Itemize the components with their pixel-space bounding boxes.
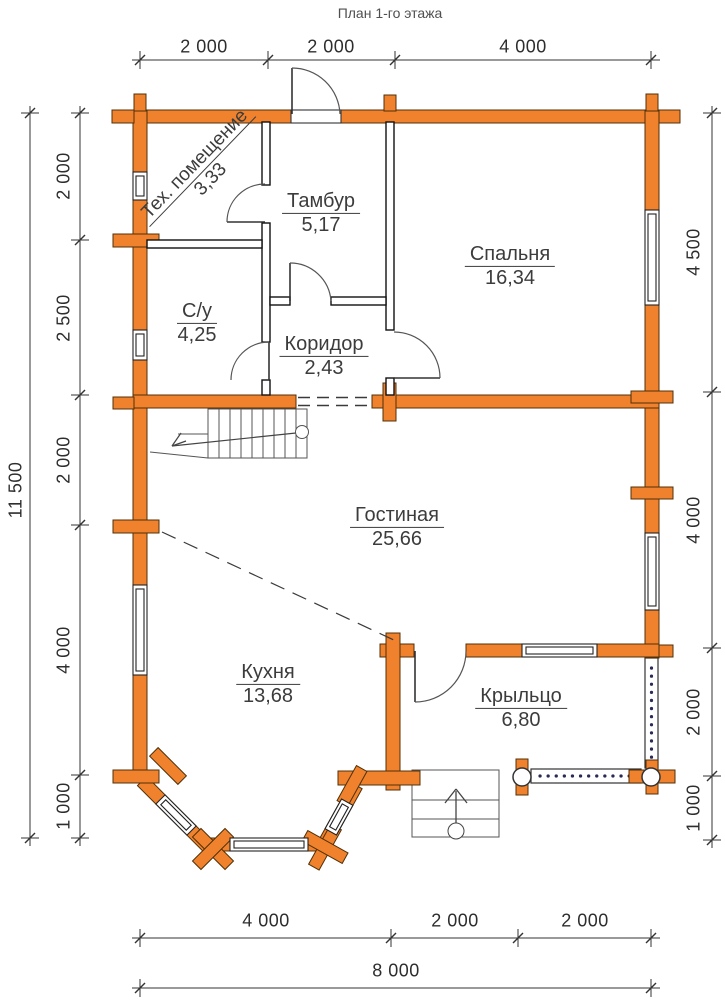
porch-steps xyxy=(412,770,499,839)
dim-bottom-total: 8 000 xyxy=(372,961,420,982)
room-name: Кухня xyxy=(236,661,300,685)
dim-top-2: 2 000 xyxy=(307,37,355,58)
dim-left-3: 2 000 xyxy=(54,436,75,484)
dim-right-2: 4 000 xyxy=(684,496,705,544)
floor-plan-page: План 1-го этажа Тех. помещение 3,33 Тамб… xyxy=(0,0,725,1000)
dim-left-4: 4 000 xyxy=(54,626,75,674)
dim-top-3: 4 000 xyxy=(499,37,547,58)
floor-plan-drawing xyxy=(0,0,725,1000)
room-name: Коридор xyxy=(280,333,369,357)
room-area: 5,17 xyxy=(302,214,341,237)
dim-bottom-3: 2 000 xyxy=(561,911,609,932)
room-area: 25,66 xyxy=(372,528,422,551)
dim-left-2: 2 500 xyxy=(54,294,75,342)
exterior-walls xyxy=(112,94,680,870)
room-area: 6,80 xyxy=(502,709,541,732)
room-name: С/у xyxy=(177,300,217,324)
room-label-bedroom: Спальня 16,34 xyxy=(465,243,555,289)
dim-right-4: 1 000 xyxy=(684,784,705,832)
room-label-porch: Крыльцо 6,80 xyxy=(475,685,567,731)
room-label-kitchen: Кухня 13,68 xyxy=(236,661,300,707)
dim-bottom-2: 2 000 xyxy=(431,911,479,932)
room-label-corridor: Коридор 2,43 xyxy=(280,333,369,379)
room-area: 4,25 xyxy=(178,324,217,347)
room-name: Спальня xyxy=(465,243,555,267)
dim-left-1: 2 000 xyxy=(54,152,75,200)
room-name: Крыльцо xyxy=(475,685,567,709)
room-label-tambur: Тамбур 5,17 xyxy=(282,190,360,236)
room-name: Гостиная xyxy=(350,504,444,528)
dim-bottom-1: 4 000 xyxy=(242,911,290,932)
page-title: План 1-го этажа xyxy=(338,5,443,21)
dim-top-1: 2 000 xyxy=(180,37,228,58)
room-area: 2,43 xyxy=(305,357,344,380)
room-label-bathroom: С/у 4,25 xyxy=(177,300,217,346)
interior-staircase xyxy=(150,409,309,458)
dim-left-total: 11 500 xyxy=(6,462,27,519)
room-label-livingroom: Гостиная 25,66 xyxy=(350,504,444,550)
dim-left-5: 1 000 xyxy=(54,782,75,830)
room-area: 13,68 xyxy=(243,685,293,708)
room-area: 16,34 xyxy=(485,267,535,290)
room-name: Тамбур xyxy=(282,190,360,214)
dim-right-1: 4 500 xyxy=(684,228,705,276)
dim-right-3: 2 000 xyxy=(684,688,705,736)
